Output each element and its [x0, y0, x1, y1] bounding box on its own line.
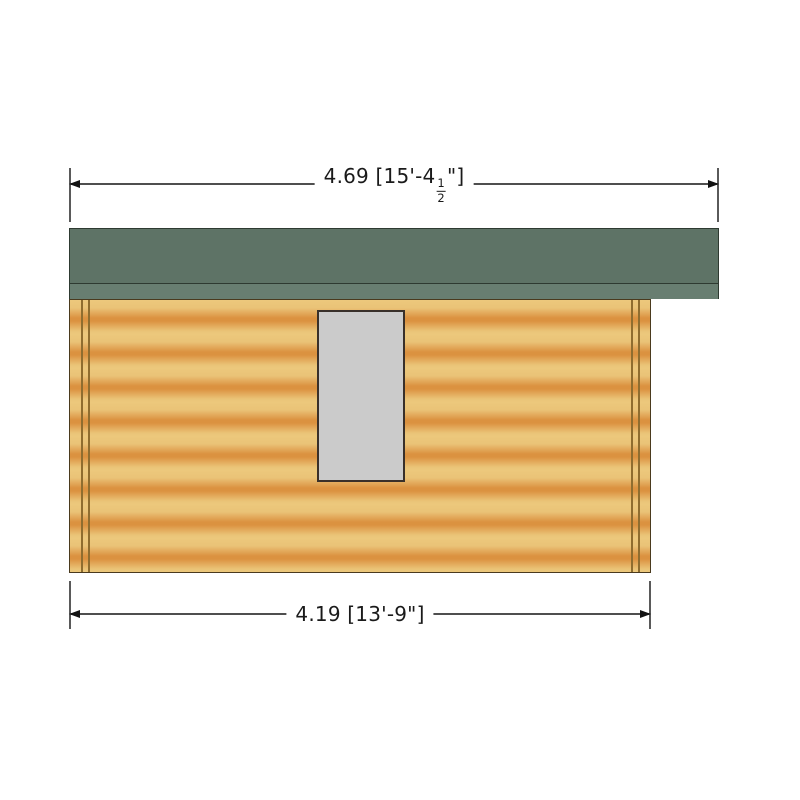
roof-fascia: [70, 283, 718, 299]
window: [317, 310, 405, 482]
extension-line-bottom-right: [649, 581, 651, 629]
dimension-line-top: 4.69 [15'-412"]: [70, 183, 718, 185]
roof: [69, 228, 719, 299]
fraction: 12: [436, 178, 446, 204]
top-dimension-text: 4.69 [15'-4: [324, 164, 436, 188]
corner-trim-right-outer: [638, 300, 640, 572]
bottom-dimension-label: 4.19 [13'-9"]: [286, 602, 433, 626]
wall: [69, 299, 651, 573]
roof-panel: [70, 229, 718, 283]
elevation-drawing: 4.69 [15'-412"] 4.19 [13'-9"]: [0, 0, 800, 800]
arrowhead-left-icon: [69, 180, 80, 188]
dimension-line-bottom: 4.19 [13'-9"]: [70, 613, 650, 615]
arrowhead-right-icon: [640, 610, 651, 618]
extension-line-top-left: [69, 168, 71, 222]
fraction-numerator: 1: [436, 178, 446, 192]
fraction-denominator: 2: [437, 192, 445, 205]
corner-trim-left-outer: [81, 300, 83, 572]
top-dimension-label: 4.69 [15'-412"]: [315, 164, 474, 204]
arrowhead-right-icon: [708, 180, 719, 188]
extension-line-bottom-left: [69, 581, 71, 629]
top-dimension-suffix: "]: [447, 164, 464, 188]
extension-line-top-right: [717, 168, 719, 222]
corner-trim-right-inner: [631, 300, 633, 572]
corner-trim-left-inner: [88, 300, 90, 572]
arrowhead-left-icon: [69, 610, 80, 618]
